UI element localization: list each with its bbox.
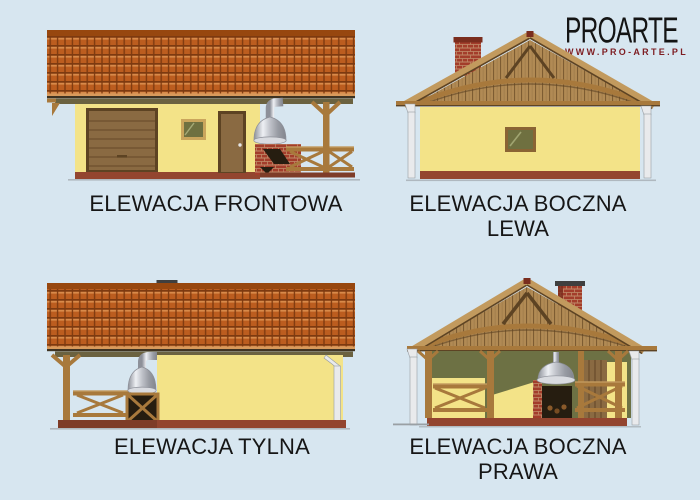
downspout-right (641, 106, 651, 178)
plinth-deck (50, 420, 350, 430)
caption-elewacja-tylna: ELEWACJA TYLNA (42, 434, 382, 459)
eave-beam (407, 346, 657, 351)
elevation-front-drawing (28, 18, 368, 188)
porch-railing (73, 390, 129, 417)
roof (47, 30, 355, 98)
window (181, 119, 206, 140)
downspout-left (405, 104, 415, 178)
caption-line: ELEWACJA BOCZNA (390, 434, 646, 459)
base-ground (393, 418, 641, 428)
elevation-rear-drawing (28, 272, 368, 437)
garage-door (86, 108, 158, 172)
caption-elewacja-boczna-lewa: ELEWACJA BOCZNA LEWA (390, 191, 646, 241)
rear-wall (157, 355, 343, 422)
elevation-side-right-drawing (393, 268, 678, 443)
roof (47, 283, 355, 351)
caption-elewacja-frontowa: ELEWACJA FRONTOWA (46, 191, 386, 216)
gable (404, 31, 654, 109)
downspout-left (407, 349, 417, 425)
caption-elewacja-boczna-prawa: ELEWACJA BOCZNA PRAWA (390, 434, 646, 484)
eave-beam (396, 101, 660, 106)
entry-door (218, 111, 246, 173)
elevation-sheet: PROARTE WWW.PRO-ARTE.PL (0, 0, 700, 500)
caption-line: PRAWA (390, 459, 646, 484)
elevation-side-left-drawing (388, 20, 668, 190)
caption-line: ELEWACJA TYLNA (42, 434, 382, 459)
ground-line (406, 180, 656, 182)
grill-box (127, 394, 158, 422)
window (505, 127, 536, 152)
gable (414, 278, 644, 354)
caption-line: ELEWACJA FRONTOWA (46, 191, 386, 216)
caption-line: ELEWACJA BOCZNA (390, 191, 646, 216)
caption-line: LEWA (390, 216, 646, 241)
grill-chimney-hood (128, 356, 157, 394)
